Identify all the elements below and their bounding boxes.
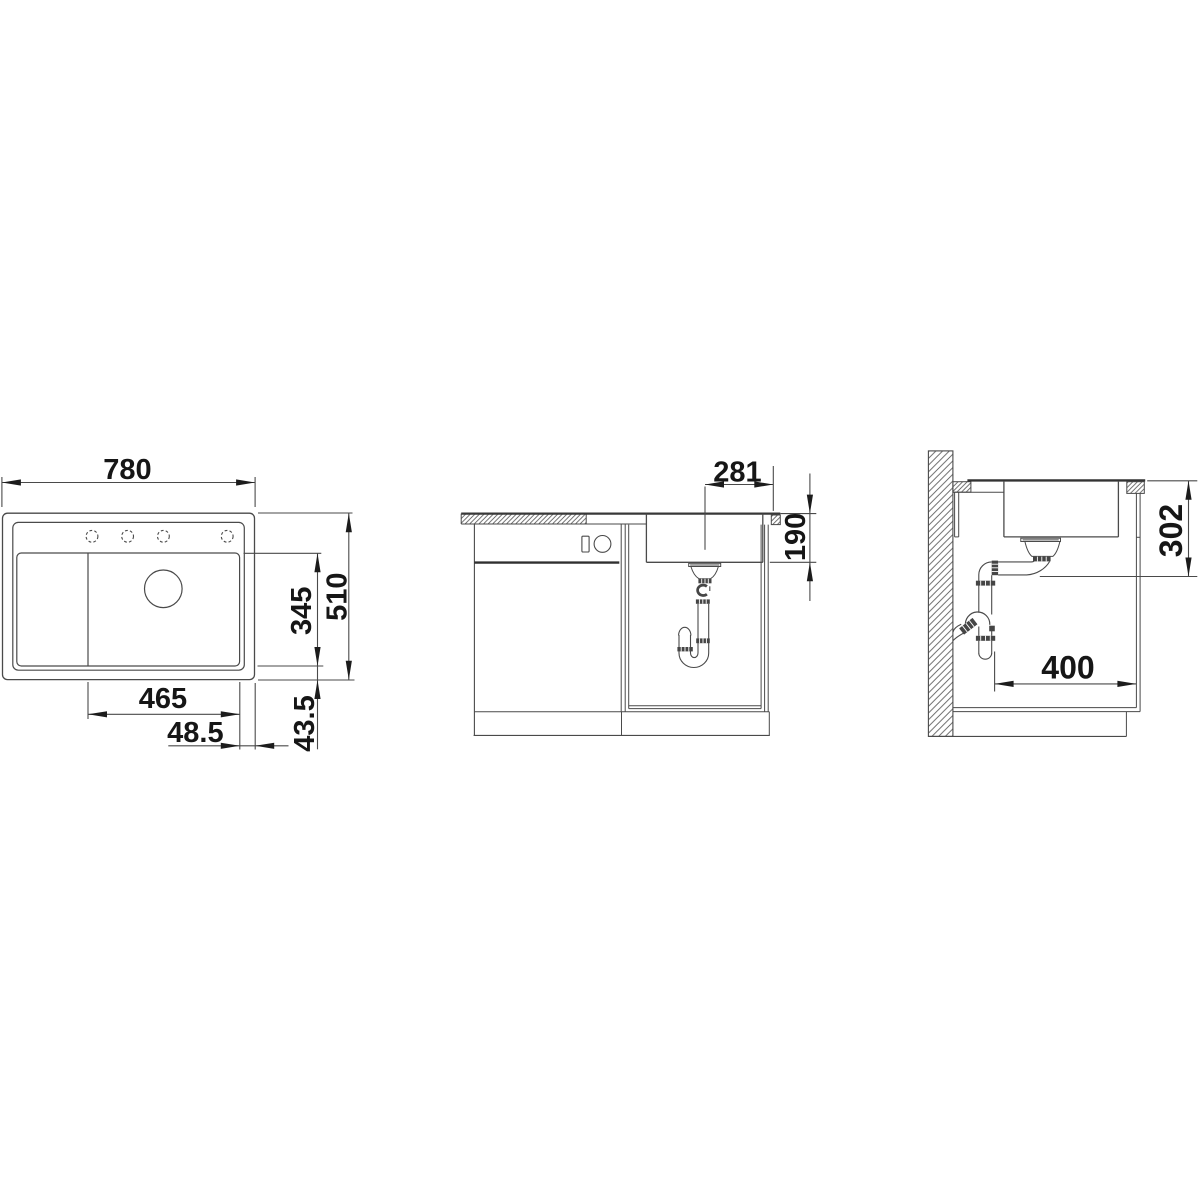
svg-text:465: 465 bbox=[139, 683, 187, 715]
svg-text:400: 400 bbox=[1041, 650, 1094, 686]
svg-text:48.5: 48.5 bbox=[167, 717, 223, 749]
svg-text:510: 510 bbox=[321, 573, 353, 621]
svg-text:345: 345 bbox=[286, 587, 318, 635]
svg-text:281: 281 bbox=[713, 457, 761, 489]
svg-text:780: 780 bbox=[103, 454, 151, 486]
svg-text:190: 190 bbox=[780, 513, 812, 561]
svg-text:43.5: 43.5 bbox=[289, 695, 321, 751]
svg-text:302: 302 bbox=[1153, 504, 1189, 557]
